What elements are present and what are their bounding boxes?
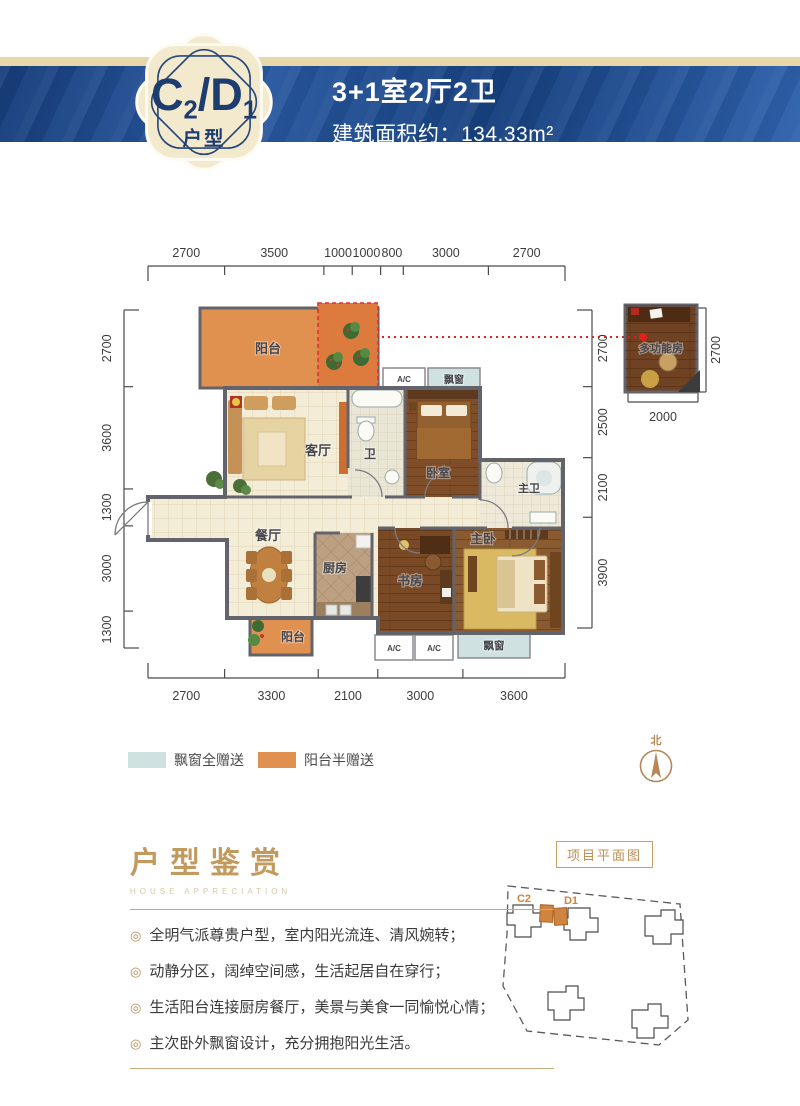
label-study: 书房 [397,573,422,588]
svg-text:2000: 2000 [649,410,677,424]
gift-balcony-area [318,303,378,388]
svg-text:3500: 3500 [260,246,288,260]
feature-text: 主次卧外飘窗设计，充分拥抱阳光生活。 [149,1033,419,1054]
label-kitchen: 厨房 [323,560,347,575]
svg-text:2700: 2700 [596,334,610,362]
svg-text:1300: 1300 [100,493,114,521]
label-dining: 餐厅 [254,528,281,543]
label-master-bath: 主卫 [518,481,540,495]
balcony-swatch-icon [258,752,296,768]
bullet-icon: ◎ [130,925,141,946]
appreciation-section: 户型鉴赏 HOUSE APPRECIATION ◎全明气派尊贵户型，室内阳光流连… [130,838,554,1069]
feature-item: ◎全明气派尊贵户型，室内阳光流连、清风婉转； [130,925,554,946]
bullet-icon: ◎ [130,997,141,1018]
svg-text:2100: 2100 [334,689,362,703]
balcony-top [200,303,378,388]
legend-label: 阳台半赠送 [304,750,374,770]
bay-window-swatch-icon [128,752,166,768]
label-bath: 卫 [364,447,376,461]
svg-text:800: 800 [382,246,403,260]
label-ac-bottom-1: A/C [387,644,401,653]
svg-text:3300: 3300 [257,689,285,703]
legend-item-balcony: 阳台半赠送 [258,750,374,770]
divider-top [130,909,554,910]
feature-list: ◎全明气派尊贵户型，室内阳光流连、清风婉转； ◎动静分区，阔绰空间感，生活起居自… [130,925,554,1054]
divider-bottom [130,1068,554,1069]
north-compass: 北 [641,733,672,782]
svg-text:3600: 3600 [100,424,114,452]
svg-text:3000: 3000 [406,689,434,703]
svg-text:2700: 2700 [172,246,200,260]
feature-item: ◎主次卧外飘窗设计，充分拥抱阳光生活。 [130,1033,554,1054]
label-living: 客厅 [305,443,331,458]
svg-text:2700: 2700 [100,334,114,362]
section-subtitle: HOUSE APPRECIATION [130,887,554,896]
svg-text:2700: 2700 [709,336,723,364]
svg-text:3600: 3600 [500,689,528,703]
svg-text:2700: 2700 [513,246,541,260]
site-label-d1: D1 [564,895,578,907]
legend: 飘窗全赠送 阳台半赠送 [128,750,374,770]
legend-item-bay-window: 飘窗全赠送 [128,750,244,770]
label-ac-bottom-2: A/C [427,644,441,653]
legend-label: 飘窗全赠送 [174,750,244,770]
svg-text:3900: 3900 [596,559,610,587]
siteplan-title-box: 项目平面图 [556,841,653,868]
svg-text:2500: 2500 [596,408,610,436]
label-bedroom: 卧室 [426,465,450,480]
label-bay-top: 飘窗 [444,373,464,386]
svg-text:1000: 1000 [324,246,352,260]
svg-text:1300: 1300 [100,616,114,644]
compass-north-label: 北 [651,733,662,747]
svg-text:2700: 2700 [172,689,200,703]
bullet-icon: ◎ [130,1033,141,1054]
feature-item: ◎动静分区，阔绰空间感，生活起居自在穿行； [130,961,554,982]
svg-text:2100: 2100 [596,474,610,502]
feature-text: 生活阳台连接厨房餐厅，美景与美食一同愉悦心情； [149,997,494,1018]
label-balcony-bottom: 阳台 [281,629,305,644]
svg-text:3000: 3000 [100,555,114,583]
label-annex: 多功能房 [639,341,683,355]
bullet-icon: ◎ [130,961,141,982]
label-master-bedroom: 主卧 [470,531,496,546]
label-balcony-top: 阳台 [255,341,281,356]
label-bay-bottom: 飘窗 [484,639,505,652]
page: 3+1室2厅2卫 建筑面积约：134.33m² C2/D1 户型 [0,0,800,1106]
section-title: 户型鉴赏 [130,838,554,882]
feature-item: ◎生活阳台连接厨房餐厅，美景与美食一同愉悦心情； [130,997,554,1018]
svg-text:3000: 3000 [432,246,460,260]
feature-text: 全明气派尊贵户型，室内阳光流连、清风婉转； [149,925,464,946]
svg-text:1000: 1000 [353,246,381,260]
label-ac-top: A/C [397,375,411,384]
compass-needle-icon [651,752,661,778]
feature-text: 动静分区，阔绰空间感，生活起居自在穿行； [149,961,449,982]
